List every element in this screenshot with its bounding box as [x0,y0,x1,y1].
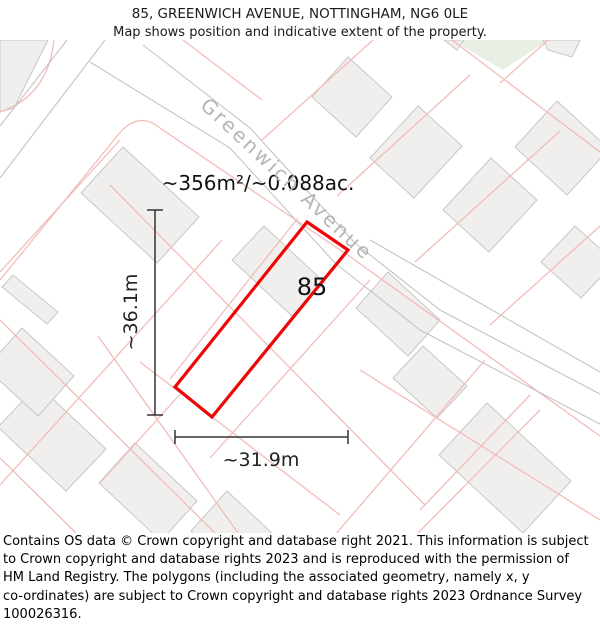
horizontal-dimension-label: ~31.9m [223,449,300,471]
building [543,40,580,57]
area-label: ~356m²/~0.088ac. [162,171,355,195]
page-title: 85, GREENWICH AVENUE, NOTTINGHAM, NG6 0L… [0,6,600,22]
page-subtitle: Map shows position and indicative extent… [0,25,600,40]
plot-number-label: 85 [297,273,328,301]
building [393,346,467,418]
building [370,106,462,198]
building [356,272,440,356]
building [2,275,58,324]
building [443,158,537,252]
building [541,226,600,298]
building [99,443,197,533]
building [81,147,199,263]
building [515,101,600,195]
building [0,328,74,416]
building [0,385,106,491]
building [0,40,48,112]
building [312,57,392,137]
footer-line: 100026316. [3,606,600,624]
green-area [452,40,548,70]
horizontal-dimension-line [175,430,348,444]
building [191,491,289,533]
building [439,403,571,533]
footer-line: co-ordinates) are subject to Crown copyr… [3,588,600,606]
property-map: ~356m²/~0.088ac. 85 Greenwich Avenue ~36… [0,40,600,533]
footer-line: HM Land Registry. The polygons (includin… [3,569,600,587]
footer-line: to Crown copyright and database rights 2… [3,551,600,569]
footer-line: Contains OS data © Crown copyright and d… [3,533,600,551]
vertical-dimension-label: ~36.1m [120,274,142,351]
page-header: 85, GREENWICH AVENUE, NOTTINGHAM, NG6 0L… [0,0,600,40]
building [232,226,324,316]
parcel-boundary-line [183,40,262,100]
parcel-boundary-line [360,370,600,520]
copyright-footer: Contains OS data © Crown copyright and d… [0,533,600,624]
